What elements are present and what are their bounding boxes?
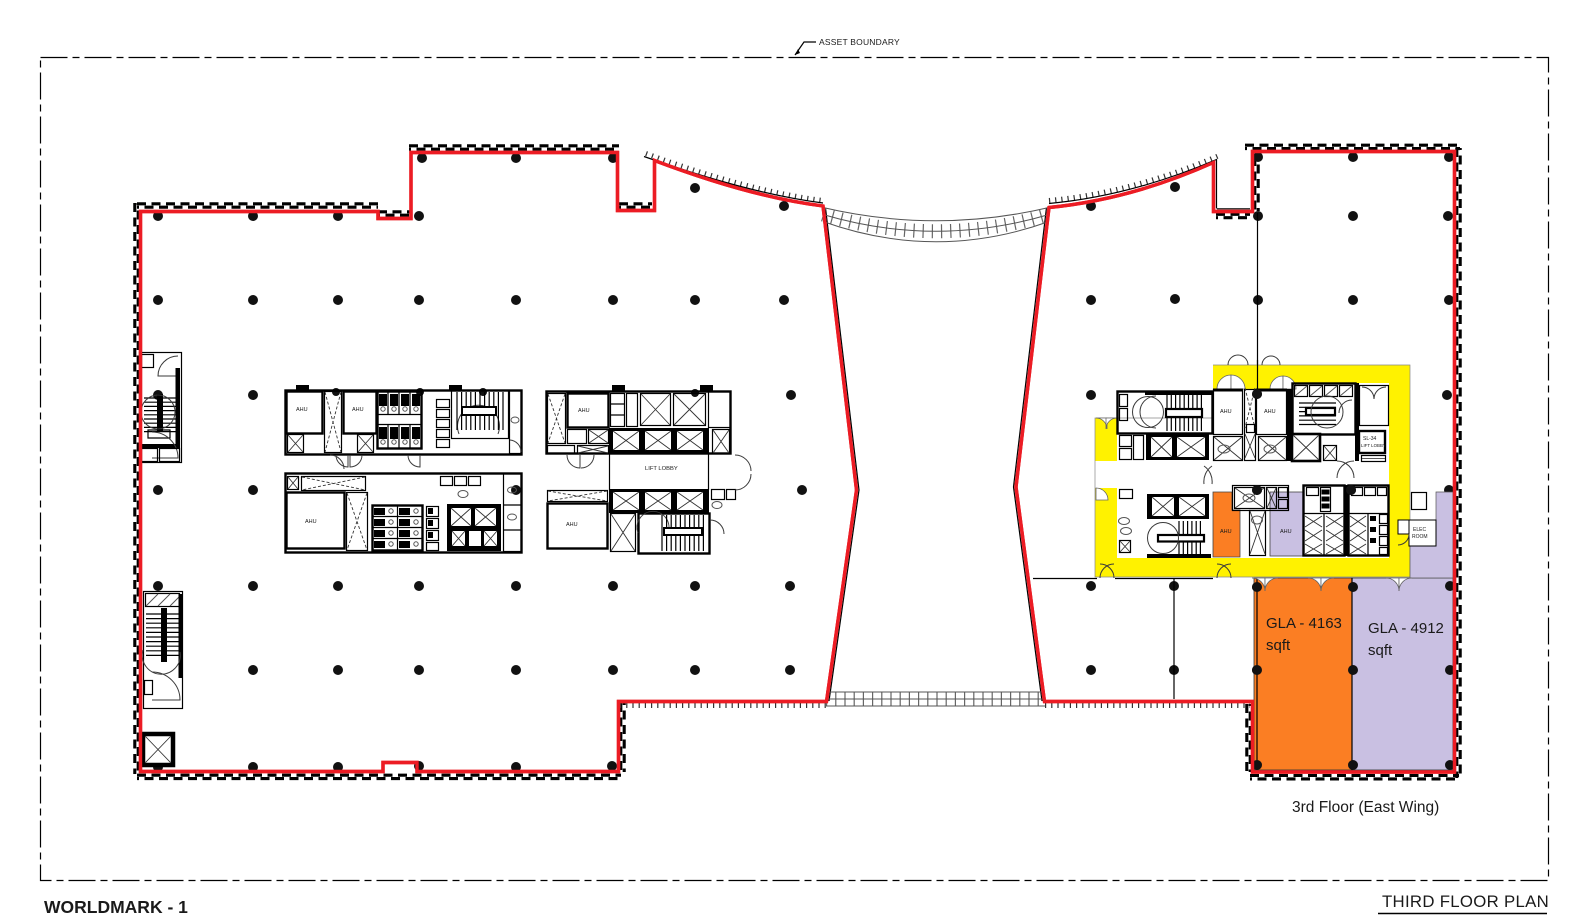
- svg-text:sqft: sqft: [1266, 637, 1291, 654]
- svg-text:AHU: AHU: [578, 408, 590, 414]
- svg-text:SL-34: SL-34: [1363, 436, 1377, 442]
- svg-text:ROOM: ROOM: [1412, 534, 1428, 540]
- svg-text:THIRD FLOOR PLAN: THIRD FLOOR PLAN: [1382, 892, 1549, 911]
- svg-text:3rd Floor (East Wing): 3rd Floor (East Wing): [1292, 799, 1439, 816]
- svg-text:AHU: AHU: [1280, 529, 1292, 535]
- svg-text:AHU: AHU: [1220, 409, 1232, 415]
- svg-text:AHU: AHU: [305, 519, 317, 525]
- svg-text:AHU: AHU: [1264, 409, 1276, 415]
- svg-text:LIFT LOBBY: LIFT LOBBY: [645, 466, 678, 472]
- svg-text:AHU: AHU: [1220, 529, 1232, 535]
- svg-text:GLA - 4912: GLA - 4912: [1368, 620, 1444, 637]
- svg-text:AHU: AHU: [352, 407, 364, 413]
- svg-text:LIFT LOBBY: LIFT LOBBY: [1361, 443, 1386, 448]
- svg-text:ELEC: ELEC: [1413, 527, 1426, 533]
- svg-text:AHU: AHU: [566, 522, 578, 528]
- svg-text:WORLDMARK - 1: WORLDMARK - 1: [44, 897, 188, 917]
- svg-text:GLA - 4163: GLA - 4163: [1266, 615, 1342, 632]
- svg-text:AHU: AHU: [296, 407, 308, 413]
- svg-text:ASSET BOUNDARY: ASSET BOUNDARY: [819, 37, 900, 47]
- svg-text:sqft: sqft: [1368, 642, 1393, 659]
